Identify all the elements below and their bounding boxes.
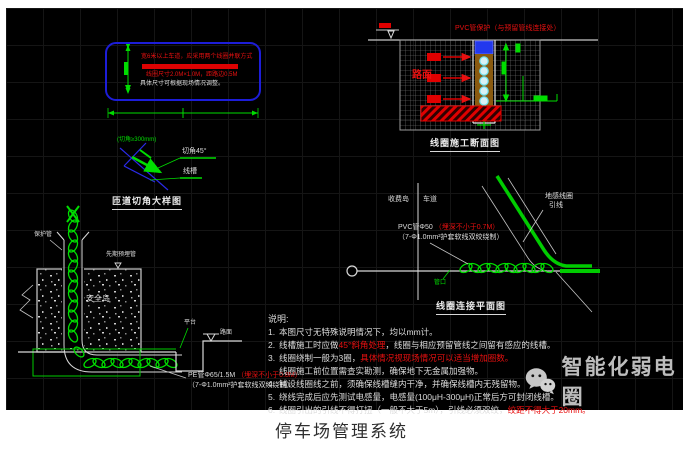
loop-box-note-3: 线圈尺寸2.0M×1.0M，距路边0.5M [146,72,238,79]
island-embed-label: 先期预埋管 [106,252,136,259]
loop-box-note-4: 具体尺寸可根据现场情况调整。 [140,81,224,88]
island-label: 安全岛 [86,294,110,303]
island-pipe-label: 保护管 [34,232,52,239]
plan-spec-white: PVC管Φ50 [398,224,435,231]
plan-header-right: 车道 [423,196,437,204]
watermark: 智能化弱电圈 [524,351,683,411]
plan-port-label: 管口 [434,280,446,287]
watermark-brand: 智能化弱电圈 [562,351,683,411]
article-page: 宽6米以上车道，应采用两个线圈并联方式 线圈尺寸2.0M×1.0M，距路边0.5… [0,0,683,454]
section-caption: 线圈施工断面图 [430,136,500,152]
island-road-label: 路面 [220,330,232,337]
plan-lead-label-1: 地感线圈 [545,193,573,201]
plan-spec-red: （埋深不小于0.7M） [435,224,500,231]
plan-spec-line-1: PVC管Φ50 （埋深不小于0.7M） [398,224,499,232]
island-spec-white: PE管Φ65/1.5M [188,372,237,379]
plan-lead-label-2: 引线 [549,202,563,210]
ramp-dim-note: (切角≥300mm) [117,137,156,144]
plan-spec-line-2: （7-Φ1.0mm²护套软线双绞绕制） [398,234,504,242]
loop-box-note-1: 宽6米以上车道，应采用两个线圈并联方式 [141,54,252,61]
page-title: 停车场管理系统 [0,417,683,442]
loop-box-highlight-bar [142,64,238,69]
ramp-caption: 匝道切角大样图 [112,194,182,210]
note-item: 1.本图尺寸无特殊说明情况下，均以mm计。 [268,326,680,339]
section-road-label: 路面 [412,70,432,82]
ramp-cut-label: 切角45° [182,148,207,156]
island-platform-label: 平台 [184,320,196,327]
notes-title: 说明: [268,313,680,326]
section-top-note: PVC管保护（与预留管线连接处） [455,25,560,33]
plan-header-left: 收费岛 [388,196,409,204]
wechat-icon [524,364,556,398]
ramp-slot-label: 线槽 [183,168,197,176]
